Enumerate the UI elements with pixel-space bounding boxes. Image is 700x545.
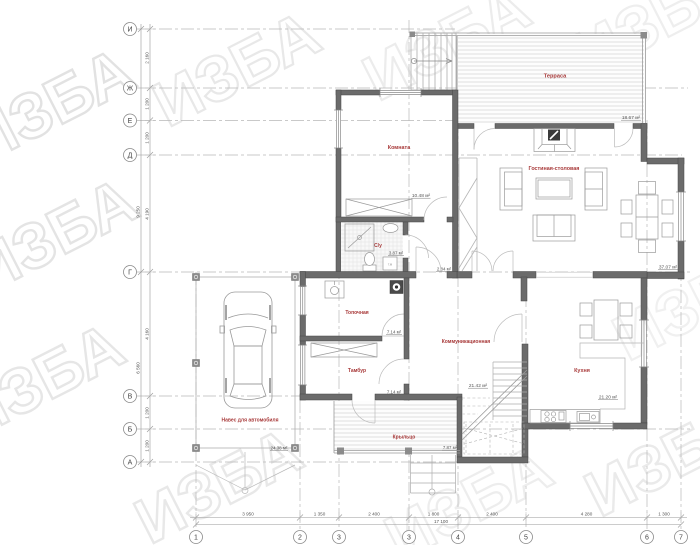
svg-text:2: 2 — [298, 535, 302, 542]
svg-text:С/у: С/у — [374, 243, 382, 249]
svg-text:5: 5 — [524, 535, 528, 542]
svg-text:1: 1 — [194, 535, 198, 542]
svg-text:И: И — [127, 27, 132, 34]
svg-text:3: 3 — [407, 535, 411, 542]
svg-text:4 190: 4 190 — [145, 208, 150, 220]
svg-text:1 350: 1 350 — [314, 512, 326, 517]
svg-text:3: 3 — [337, 535, 341, 542]
svg-text:Б: Б — [128, 427, 133, 434]
svg-text:9 250: 9 250 — [136, 206, 141, 218]
svg-text:3.87 м²: 3.87 м² — [389, 251, 404, 256]
svg-text:24.38 м²: 24.38 м² — [271, 446, 288, 451]
svg-text:7.87 м²: 7.87 м² — [443, 445, 458, 450]
svg-text:1 200: 1 200 — [145, 440, 150, 452]
svg-text:Тамбур: Тамбур — [348, 367, 366, 374]
svg-text:Навес для автомобиля: Навес для автомобиля — [221, 417, 278, 424]
svg-text:6: 6 — [645, 535, 649, 542]
svg-text:7: 7 — [679, 535, 683, 542]
svg-text:Е: Е — [128, 118, 133, 125]
svg-text:1 300: 1 300 — [658, 512, 670, 517]
svg-text:1 200: 1 200 — [145, 407, 150, 419]
svg-text:17 100: 17 100 — [434, 519, 448, 524]
svg-text:4 160: 4 160 — [145, 328, 150, 340]
svg-text:4: 4 — [456, 535, 460, 542]
svg-text:1 200: 1 200 — [145, 132, 150, 144]
svg-text:Коммуникационная: Коммуникационная — [442, 339, 491, 345]
svg-text:1 200: 1 200 — [145, 98, 150, 110]
svg-text:т.м: т.м — [388, 263, 392, 267]
svg-text:1 800: 1 800 — [428, 512, 440, 517]
svg-text:Крыльцо: Крыльцо — [393, 435, 416, 441]
svg-text:2.84 м²: 2.84 м² — [437, 267, 452, 272]
svg-text:Комната: Комната — [388, 145, 411, 151]
svg-text:Терраса: Терраса — [544, 74, 567, 80]
svg-text:2 160: 2 160 — [145, 52, 150, 64]
svg-text:2 400: 2 400 — [368, 512, 380, 517]
svg-text:Кухня: Кухня — [574, 368, 590, 374]
svg-text:Ж: Ж — [127, 86, 134, 93]
svg-text:Г: Г — [128, 270, 132, 277]
svg-text:6 560: 6 560 — [136, 362, 141, 374]
svg-text:А: А — [128, 460, 133, 467]
svg-text:Д: Д — [128, 153, 133, 160]
svg-text:2 400: 2 400 — [486, 512, 498, 517]
svg-text:4 280: 4 280 — [581, 512, 593, 517]
svg-text:Топочная: Топочная — [345, 310, 368, 316]
svg-text:7.14 м²: 7.14 м² — [387, 330, 402, 335]
svg-text:Гостиная-столовая: Гостиная-столовая — [529, 166, 580, 172]
svg-text:В: В — [128, 394, 133, 401]
svg-text:3 950: 3 950 — [242, 512, 254, 517]
